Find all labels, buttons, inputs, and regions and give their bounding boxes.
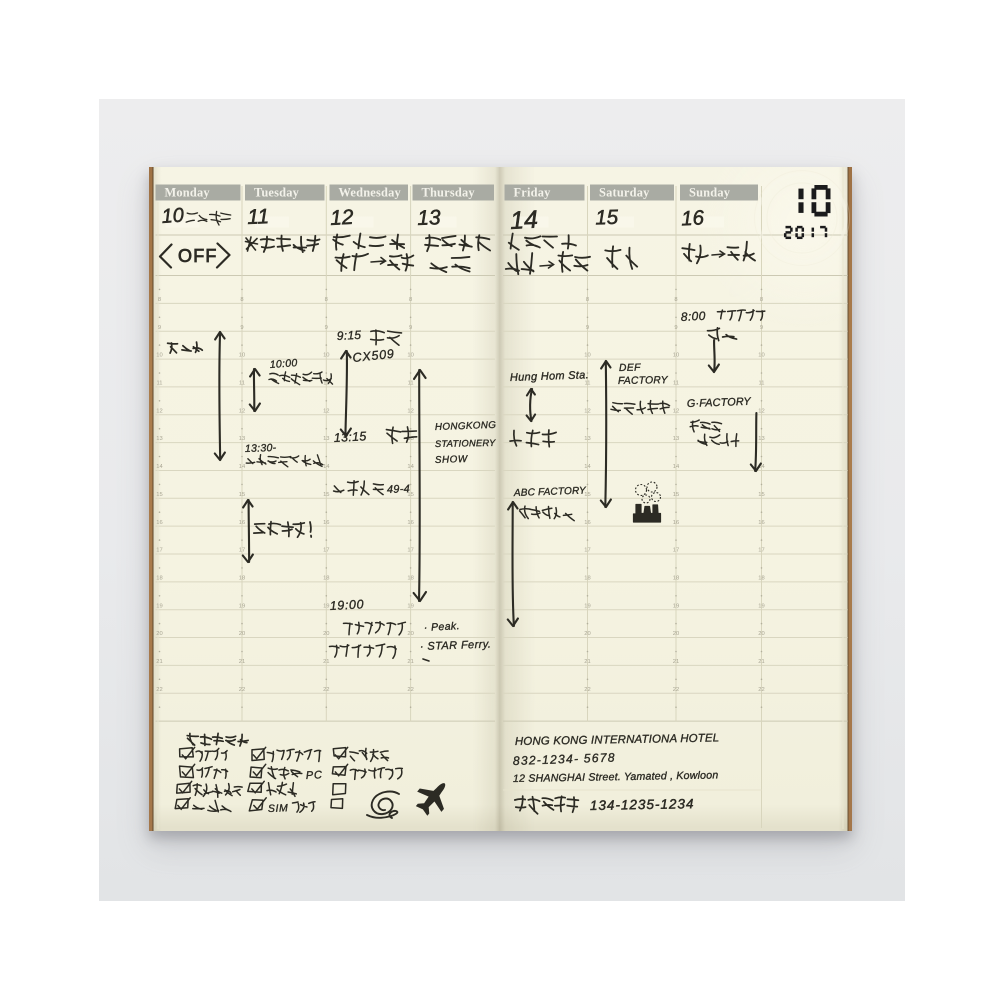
svg-text:18: 18 — [407, 576, 413, 582]
svg-text:9: 9 — [158, 325, 161, 331]
svg-text:16: 16 — [758, 520, 764, 526]
svg-text:11: 11 — [673, 381, 679, 387]
svg-text:21: 21 — [156, 659, 162, 665]
svg-text:12: 12 — [584, 408, 590, 414]
svg-text:Monday: Monday — [165, 186, 211, 200]
svg-text:8:00: 8:00 — [680, 309, 706, 324]
svg-text:11: 11 — [247, 205, 270, 229]
svg-text:OFF: OFF — [178, 246, 218, 266]
svg-text:18: 18 — [323, 576, 329, 582]
svg-text:15: 15 — [595, 206, 619, 230]
svg-text:9: 9 — [586, 325, 589, 331]
svg-text:CX509: CX509 — [352, 347, 395, 365]
svg-text:13: 13 — [156, 436, 162, 442]
svg-text:14: 14 — [673, 464, 680, 470]
svg-text:STATIONERY: STATIONERY — [435, 438, 496, 449]
svg-text:SHOW: SHOW — [435, 454, 469, 466]
svg-text:22: 22 — [156, 687, 162, 693]
svg-text:16: 16 — [323, 520, 329, 526]
svg-text:22: 22 — [323, 687, 329, 693]
svg-text:18: 18 — [673, 576, 679, 582]
svg-text:16: 16 — [156, 520, 162, 526]
svg-text:15: 15 — [156, 492, 162, 498]
svg-text:9: 9 — [760, 325, 763, 331]
svg-text:Thursday: Thursday — [422, 186, 476, 200]
svg-text:12 SHANGHAI Street. Yamated ,: 12 SHANGHAI Street. Yamated , Kowloon — [513, 769, 719, 785]
svg-text:12: 12 — [330, 206, 355, 230]
svg-text:14: 14 — [156, 464, 163, 470]
svg-text:21: 21 — [407, 659, 413, 665]
svg-text:19:00: 19:00 — [329, 597, 364, 613]
svg-text:G·FACTORY: G·FACTORY — [687, 396, 752, 410]
svg-text:8: 8 — [760, 297, 763, 303]
svg-text:21: 21 — [584, 659, 590, 665]
svg-text:21: 21 — [758, 659, 764, 665]
svg-text:Hung Hom Sta.: Hung Hom Sta. — [510, 369, 589, 384]
svg-text:Tuesday: Tuesday — [254, 186, 300, 200]
svg-text:9:15: 9:15 — [336, 328, 361, 343]
svg-text:134-1235-1234: 134-1235-1234 — [590, 796, 695, 813]
svg-text:22: 22 — [758, 687, 764, 693]
svg-text:8: 8 — [409, 297, 412, 303]
svg-text:· Peak.: · Peak. — [424, 620, 461, 634]
svg-text:10: 10 — [161, 204, 185, 227]
svg-text:17: 17 — [239, 548, 245, 554]
svg-text:19: 19 — [673, 603, 679, 609]
svg-text:18: 18 — [584, 576, 590, 582]
svg-text:Friday: Friday — [514, 186, 552, 200]
svg-text:22: 22 — [407, 687, 413, 693]
svg-text:14: 14 — [407, 464, 414, 470]
svg-text:18: 18 — [239, 576, 245, 582]
svg-text:10: 10 — [584, 353, 590, 359]
svg-text:9: 9 — [325, 325, 328, 331]
svg-text:10: 10 — [758, 353, 764, 359]
svg-text:20: 20 — [156, 631, 162, 637]
svg-text:17: 17 — [758, 548, 764, 554]
svg-text:18: 18 — [758, 576, 764, 582]
svg-text:22: 22 — [239, 687, 245, 693]
svg-text:13:15: 13:15 — [333, 429, 366, 445]
svg-text:20: 20 — [323, 631, 329, 637]
svg-text:17: 17 — [584, 548, 590, 554]
svg-text:832-1234- 5678: 832-1234- 5678 — [513, 750, 616, 768]
svg-text:12: 12 — [407, 408, 413, 414]
svg-text:19: 19 — [239, 603, 245, 609]
svg-text:· STAR Ferry.: · STAR Ferry. — [420, 639, 492, 653]
svg-text:16: 16 — [673, 520, 679, 526]
svg-text:20: 20 — [407, 631, 413, 637]
svg-text:DEF: DEF — [619, 363, 641, 374]
svg-text:12: 12 — [323, 408, 329, 414]
svg-text:13: 13 — [584, 436, 590, 442]
svg-text:10: 10 — [407, 353, 413, 359]
svg-text:10: 10 — [673, 353, 679, 359]
svg-text:15: 15 — [673, 492, 679, 498]
svg-text:HONGKONG: HONGKONG — [435, 420, 497, 433]
svg-text:Wednesday: Wednesday — [339, 186, 402, 200]
svg-text:14: 14 — [239, 464, 246, 470]
svg-text:13: 13 — [323, 436, 329, 442]
svg-text:21: 21 — [239, 659, 245, 665]
svg-text:10:00: 10:00 — [269, 357, 298, 371]
svg-text:8: 8 — [586, 297, 589, 303]
svg-text:14: 14 — [323, 464, 330, 470]
svg-text:15: 15 — [758, 492, 764, 498]
svg-text:19: 19 — [323, 603, 329, 609]
svg-text:20: 20 — [758, 631, 764, 637]
svg-text:15: 15 — [239, 492, 245, 498]
svg-text:17: 17 — [156, 548, 162, 554]
svg-text:14: 14 — [584, 464, 591, 470]
svg-text:13: 13 — [673, 436, 679, 442]
svg-text:16: 16 — [584, 520, 590, 526]
svg-text:12: 12 — [673, 408, 679, 414]
svg-text:SIM: SIM — [268, 802, 289, 815]
svg-text:14: 14 — [509, 206, 538, 235]
svg-text:15: 15 — [323, 492, 329, 498]
svg-text:PC: PC — [306, 769, 323, 782]
svg-text:13: 13 — [239, 436, 245, 442]
svg-text:19: 19 — [407, 603, 413, 609]
svg-text:13:30-: 13:30- — [245, 442, 277, 455]
svg-text:8: 8 — [240, 297, 243, 303]
svg-text:HONG KONG INTERNATIONA HOTEL: HONG KONG INTERNATIONA HOTEL — [515, 732, 720, 748]
svg-text:20: 20 — [239, 631, 245, 637]
svg-text:13: 13 — [417, 206, 441, 230]
svg-text:11: 11 — [584, 381, 590, 387]
svg-text:8: 8 — [674, 297, 677, 303]
svg-text:12: 12 — [758, 408, 764, 414]
svg-text:10: 10 — [323, 353, 329, 359]
svg-text:16: 16 — [681, 206, 706, 230]
svg-text:Saturday: Saturday — [599, 186, 650, 200]
svg-text:9: 9 — [674, 325, 677, 331]
svg-text:19: 19 — [156, 603, 162, 609]
svg-text:11: 11 — [758, 381, 764, 387]
svg-text:Sunday: Sunday — [689, 186, 731, 200]
svg-text:20: 20 — [584, 631, 590, 637]
svg-text:17: 17 — [407, 548, 413, 554]
svg-text:21: 21 — [673, 659, 679, 665]
svg-text:12: 12 — [239, 408, 245, 414]
svg-text:22: 22 — [673, 687, 679, 693]
svg-text:49-4: 49-4 — [387, 483, 411, 496]
svg-text:10: 10 — [156, 353, 162, 359]
svg-text:22: 22 — [584, 687, 590, 693]
svg-text:20: 20 — [673, 631, 679, 637]
svg-text:16: 16 — [239, 520, 245, 526]
svg-text:9: 9 — [240, 325, 243, 331]
svg-text:13: 13 — [758, 436, 764, 442]
svg-text:17: 17 — [323, 548, 329, 554]
svg-text:12: 12 — [156, 408, 162, 414]
svg-text:8: 8 — [158, 297, 161, 303]
svg-text:16: 16 — [407, 520, 413, 526]
svg-text:21: 21 — [323, 659, 329, 665]
svg-text:17: 17 — [673, 548, 679, 554]
svg-text:10: 10 — [239, 353, 245, 359]
svg-text:19: 19 — [584, 603, 590, 609]
svg-text:19: 19 — [758, 603, 764, 609]
svg-text:11: 11 — [156, 381, 162, 387]
svg-text:FACTORY: FACTORY — [618, 375, 669, 387]
svg-text:18: 18 — [156, 576, 162, 582]
svg-text:11: 11 — [408, 381, 414, 387]
svg-text:8: 8 — [325, 297, 328, 303]
svg-text:ABC FACTORY: ABC FACTORY — [513, 485, 587, 499]
svg-text:11: 11 — [239, 381, 245, 387]
svg-text:9: 9 — [409, 325, 412, 331]
